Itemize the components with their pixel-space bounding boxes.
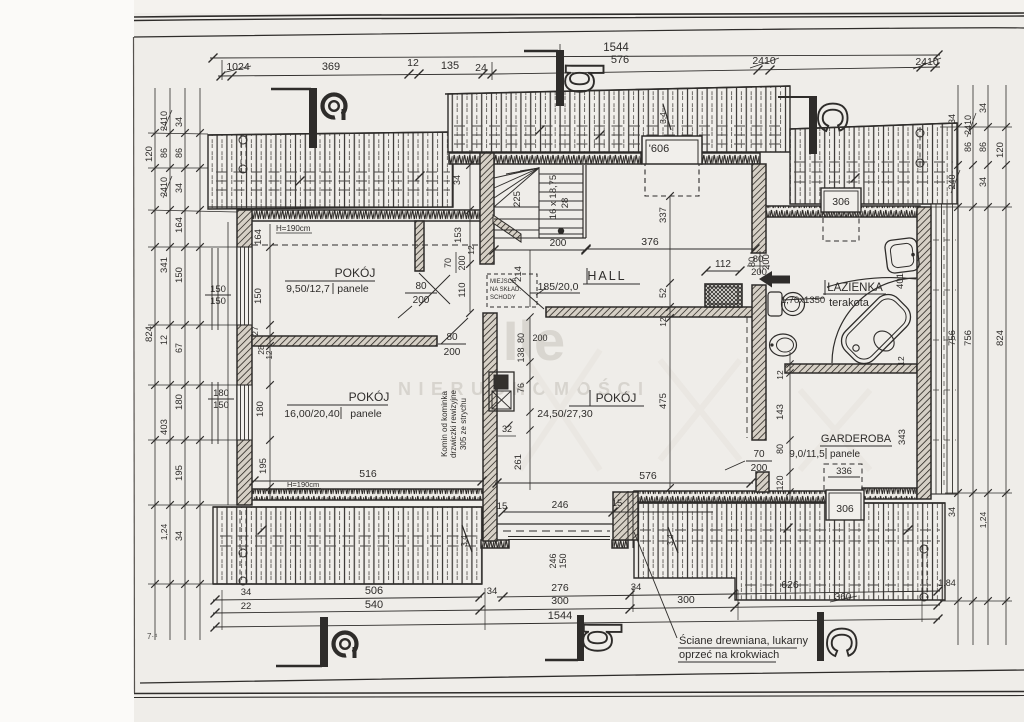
- svg-text:9,50/12,7: 9,50/12,7: [286, 283, 330, 295]
- svg-text:343: 343: [897, 429, 908, 445]
- svg-text:300: 300: [551, 595, 569, 607]
- svg-text:12: 12: [159, 335, 169, 345]
- svg-text:246: 246: [548, 553, 558, 568]
- svg-text:MIEJSCE: MIEJSCE: [490, 279, 516, 285]
- svg-text:403: 403: [159, 419, 170, 435]
- svg-text:34: 34: [174, 183, 184, 193]
- svg-text:195: 195: [174, 465, 185, 481]
- svg-text:164: 164: [253, 229, 264, 245]
- svg-text:24: 24: [475, 62, 487, 74]
- svg-text:GARDEROBA: GARDEROBA: [821, 433, 892, 445]
- svg-text:200: 200: [457, 255, 467, 270]
- svg-text:150: 150: [558, 553, 568, 568]
- svg-text:Komin od kominka: Komin od kominka: [440, 391, 449, 457]
- svg-text:341: 341: [159, 257, 170, 273]
- svg-text:86: 86: [174, 148, 184, 158]
- svg-text:12: 12: [466, 245, 476, 255]
- svg-text:POKÓJ: POKÓJ: [335, 265, 376, 280]
- svg-text:336: 336: [836, 466, 852, 477]
- svg-text:12: 12: [407, 57, 419, 69]
- svg-text:34: 34: [174, 531, 184, 541]
- svg-text:b: b: [554, 62, 612, 94]
- svg-text:306: 306: [832, 196, 850, 208]
- svg-text:1544: 1544: [603, 42, 629, 54]
- svg-text:34: 34: [978, 177, 988, 187]
- svg-text:34: 34: [487, 586, 498, 597]
- svg-text:110: 110: [457, 282, 468, 297]
- svg-text:ŁAZIENKA: ŁAZIENKA: [827, 282, 883, 294]
- svg-text:153: 153: [453, 227, 464, 243]
- svg-text:panele: panele: [350, 408, 382, 420]
- svg-text:b: b: [572, 621, 630, 653]
- svg-text:HALL: HALL: [587, 269, 626, 283]
- svg-text:16 x 18,75: 16 x 18,75: [548, 175, 559, 219]
- svg-text:H=190cm: H=190cm: [276, 224, 311, 233]
- svg-text:150: 150: [174, 267, 185, 283]
- svg-text:626: 626: [781, 579, 799, 591]
- svg-text:150: 150: [253, 288, 264, 304]
- svg-text:120: 120: [775, 475, 785, 490]
- svg-text:terakota: terakota: [829, 297, 870, 309]
- svg-text:34: 34: [452, 175, 462, 185]
- svg-text:164: 164: [174, 217, 185, 233]
- svg-text:oprzeć na krokwiach: oprzeć na krokwiach: [679, 649, 779, 661]
- svg-text:1,84: 1,84: [938, 578, 956, 588]
- svg-text:1,24: 1,24: [978, 511, 988, 528]
- svg-text:15: 15: [612, 498, 623, 509]
- svg-text:80: 80: [516, 333, 526, 343]
- svg-text:225: 225: [512, 191, 523, 207]
- svg-text:200: 200: [751, 267, 767, 278]
- svg-text:NA SKŁAD.: NA SKŁAD.: [490, 287, 521, 293]
- svg-text:195: 195: [258, 458, 269, 474]
- svg-text:Ściane drewniana, lukarny: Ściane drewniana, lukarny: [679, 634, 809, 647]
- svg-text:80: 80: [753, 254, 764, 265]
- svg-text:261: 261: [513, 454, 524, 470]
- svg-text:86: 86: [159, 148, 169, 158]
- svg-text:80: 80: [775, 444, 785, 454]
- svg-text:112: 112: [715, 259, 731, 270]
- svg-text:52: 52: [658, 288, 668, 298]
- svg-text:3,4: 3,4: [658, 112, 668, 124]
- svg-text:12: 12: [265, 350, 274, 359]
- svg-text:86: 86: [978, 142, 988, 152]
- svg-text:34: 34: [947, 114, 957, 124]
- svg-text:200: 200: [532, 333, 547, 343]
- svg-text:180: 180: [213, 388, 229, 399]
- svg-text:12: 12: [896, 356, 906, 366]
- svg-text:376: 376: [641, 236, 659, 248]
- svg-text:34: 34: [978, 103, 988, 113]
- svg-text:756: 756: [963, 330, 974, 346]
- svg-text:2410: 2410: [915, 56, 939, 68]
- svg-text:150: 150: [210, 284, 226, 295]
- svg-text:138: 138: [516, 347, 526, 362]
- svg-text:756: 756: [947, 330, 958, 346]
- svg-text:16,00/20,40: 16,00/20,40: [284, 408, 340, 420]
- svg-text:34: 34: [174, 117, 184, 127]
- svg-text:185/20,0: 185/20,0: [538, 281, 579, 293]
- svg-text:120: 120: [144, 146, 155, 162]
- svg-text:337: 337: [658, 207, 669, 223]
- svg-text:34: 34: [947, 507, 957, 517]
- svg-text:506: 506: [365, 585, 383, 597]
- svg-text:15: 15: [497, 501, 508, 512]
- svg-text:34: 34: [631, 582, 642, 593]
- svg-text:C: C: [810, 102, 857, 132]
- svg-text:22: 22: [241, 601, 252, 612]
- svg-text:1544: 1544: [548, 610, 572, 622]
- svg-text:34: 34: [241, 587, 252, 598]
- svg-text:305 ze strychu: 305 ze strychu: [459, 398, 468, 450]
- svg-text:276: 276: [551, 582, 569, 594]
- svg-text:32: 32: [502, 424, 512, 434]
- svg-text:SCHODY: SCHODY: [490, 295, 516, 301]
- svg-text:7·⁴: 7·⁴: [147, 632, 158, 641]
- svg-text:3,4: 3,4: [459, 535, 469, 547]
- svg-text:9,0/11,5: 9,0/11,5: [789, 449, 825, 460]
- svg-text:200: 200: [444, 347, 461, 358]
- svg-text:28: 28: [560, 198, 571, 209]
- svg-text:panele: panele: [830, 449, 860, 460]
- svg-text:24,50/27,30: 24,50/27,30: [537, 408, 593, 420]
- svg-text:200: 200: [751, 463, 768, 474]
- svg-text:80: 80: [415, 281, 427, 292]
- svg-text:67: 67: [174, 343, 184, 353]
- svg-text:80: 80: [446, 332, 458, 343]
- svg-text:POKÓJ: POKÓJ: [596, 390, 637, 405]
- svg-text:27: 27: [250, 326, 260, 336]
- svg-text:143: 143: [775, 404, 786, 420]
- svg-text:3,4: 3,4: [665, 534, 675, 546]
- svg-text:135: 135: [441, 60, 459, 72]
- svg-text:369: 369: [322, 61, 340, 73]
- svg-text:516: 516: [359, 468, 377, 480]
- svg-text:824: 824: [995, 330, 1006, 346]
- svg-text:C: C: [819, 627, 866, 657]
- svg-text:576: 576: [611, 54, 629, 66]
- svg-text:180: 180: [174, 394, 185, 410]
- svg-text:540: 540: [365, 599, 383, 611]
- svg-text:300: 300: [677, 594, 695, 606]
- svg-text:576: 576: [639, 470, 657, 482]
- svg-text:panele: panele: [337, 283, 369, 295]
- svg-text:824: 824: [144, 326, 155, 342]
- svg-text:70: 70: [443, 258, 453, 268]
- svg-text:2410: 2410: [752, 55, 776, 67]
- svg-text:475: 475: [658, 393, 669, 409]
- svg-text:401: 401: [895, 273, 906, 289]
- svg-text:'606: '606: [649, 143, 669, 155]
- svg-text:150: 150: [210, 296, 226, 307]
- svg-text:1,70x1350: 1,70x1350: [781, 295, 825, 306]
- svg-text:12: 12: [658, 317, 668, 327]
- svg-text:POKÓJ: POKÓJ: [349, 389, 390, 404]
- svg-text:drzwiczki rewizyjne: drzwiczki rewizyjne: [449, 389, 458, 458]
- svg-text:86: 86: [963, 142, 973, 152]
- svg-text:306: 306: [836, 503, 854, 515]
- svg-text:76: 76: [516, 383, 526, 393]
- svg-text:1,24: 1,24: [159, 523, 169, 540]
- svg-text:246: 246: [552, 500, 569, 511]
- svg-text:150: 150: [213, 400, 229, 411]
- svg-text:12: 12: [775, 370, 785, 380]
- svg-text:120: 120: [995, 142, 1006, 158]
- svg-text:200: 200: [413, 295, 430, 306]
- svg-text:180: 180: [255, 401, 266, 417]
- svg-text:70: 70: [753, 449, 765, 460]
- svg-text:200: 200: [550, 238, 567, 249]
